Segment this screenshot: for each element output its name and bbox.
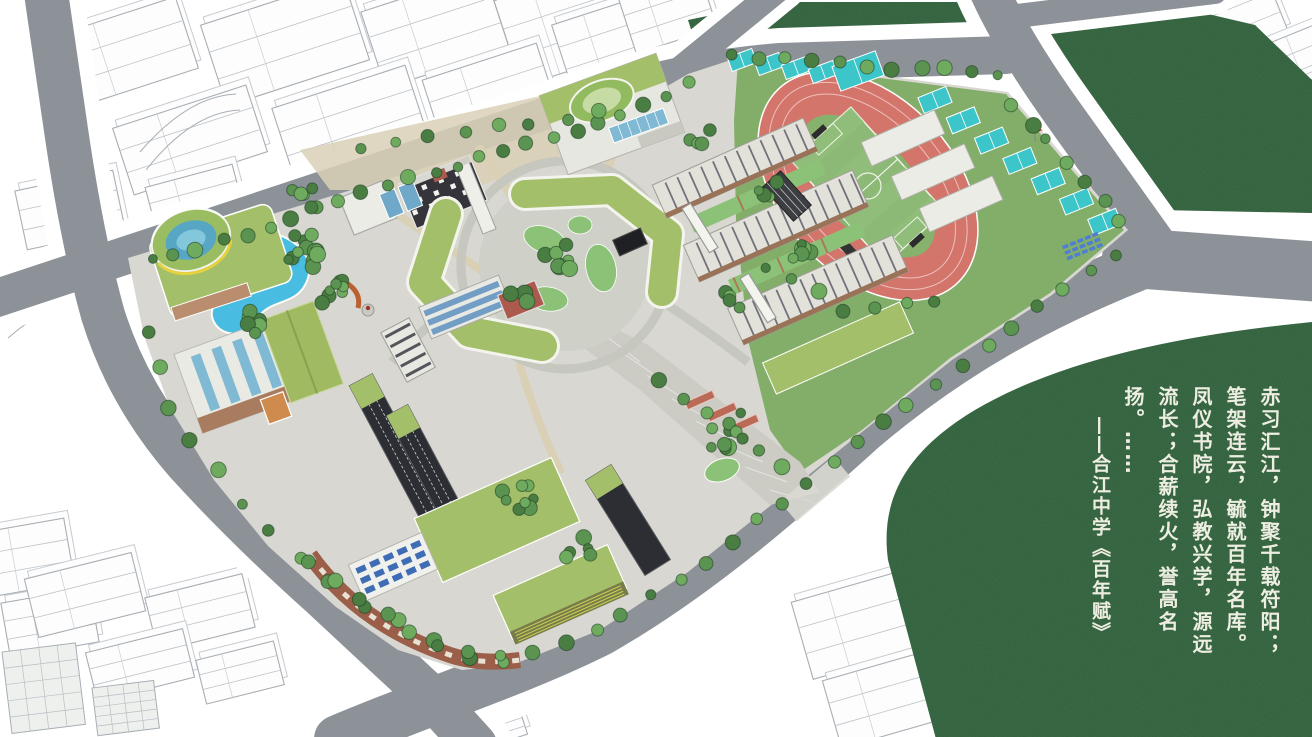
tree	[899, 398, 913, 412]
poem-line-5-text: 扬。	[1121, 386, 1145, 431]
tree	[804, 53, 819, 68]
tree	[834, 56, 846, 68]
tree	[884, 62, 899, 77]
tree	[613, 608, 627, 622]
tree	[1004, 98, 1017, 111]
tree	[860, 60, 874, 74]
tree	[218, 233, 230, 245]
poem-line-4: 流长；合薪续火，誉高名	[1155, 386, 1178, 634]
tree	[704, 124, 717, 137]
tree	[161, 400, 177, 416]
tree	[966, 66, 978, 78]
tree	[699, 557, 713, 571]
poem-line-2: 笔架连云，毓就百年名库。	[1223, 386, 1246, 656]
poem-line-5: 扬。……	[1121, 386, 1144, 476]
context-tower-wireframe	[92, 680, 159, 735]
tree	[701, 407, 713, 419]
tree	[315, 295, 330, 310]
tree	[929, 296, 940, 307]
tree	[717, 437, 731, 451]
tree	[520, 497, 530, 507]
tree	[432, 168, 442, 178]
tree	[519, 293, 535, 309]
tree	[752, 52, 766, 66]
poem-line-3: 凤仪书院，弘教兴学，源远	[1189, 386, 1212, 656]
tree	[241, 229, 255, 243]
tree	[1086, 265, 1097, 276]
tree	[402, 625, 416, 639]
tree	[851, 435, 864, 448]
tree	[328, 573, 343, 588]
tree	[592, 624, 604, 636]
tree	[382, 180, 393, 191]
tree	[786, 274, 797, 285]
tree	[576, 530, 592, 546]
tree	[571, 124, 586, 139]
tree	[661, 91, 671, 101]
tree	[1041, 134, 1051, 144]
tree	[305, 228, 318, 241]
tree	[734, 302, 745, 313]
tree	[723, 294, 736, 307]
tree	[983, 339, 996, 352]
tree	[737, 433, 748, 444]
tree	[289, 230, 301, 242]
tree	[761, 263, 770, 272]
tree	[262, 525, 274, 537]
poem-line-1: 赤习汇江，钟聚千载符阳；	[1257, 386, 1280, 656]
tree	[283, 211, 299, 227]
tree	[779, 52, 791, 64]
tree	[432, 640, 444, 652]
tree	[770, 175, 784, 189]
tree	[876, 414, 892, 430]
tree	[651, 372, 666, 387]
tree	[284, 255, 294, 265]
tree	[776, 498, 788, 510]
tree	[561, 260, 577, 276]
tree	[646, 590, 656, 600]
tree	[707, 423, 718, 434]
tree	[305, 201, 318, 214]
tree	[497, 144, 510, 157]
tree	[519, 136, 533, 150]
tree	[148, 254, 157, 263]
tree	[678, 393, 690, 405]
tree	[356, 144, 366, 154]
tree	[1056, 283, 1069, 296]
attribution-text: 合江中学《百年赋》	[1089, 454, 1111, 643]
tree	[707, 442, 717, 452]
tree	[736, 408, 746, 418]
tree	[788, 253, 798, 263]
tree	[836, 304, 850, 318]
tree	[391, 137, 401, 147]
tree	[1031, 300, 1043, 312]
tree	[548, 132, 560, 144]
tree	[516, 480, 528, 492]
tree	[453, 162, 463, 172]
tree	[421, 130, 434, 143]
tree	[503, 286, 519, 302]
tree	[1099, 194, 1112, 207]
tree	[400, 170, 415, 185]
statue	[366, 306, 370, 310]
tree	[937, 60, 952, 75]
tree	[811, 283, 827, 299]
tree	[352, 592, 366, 606]
tree	[461, 645, 474, 658]
tree	[307, 183, 318, 194]
tree	[902, 297, 913, 308]
tree	[492, 118, 505, 131]
tree	[309, 246, 325, 262]
tree	[249, 327, 260, 338]
tree	[301, 555, 315, 569]
tree	[142, 326, 155, 339]
tree	[591, 103, 606, 118]
attribution-dash-icon: ——	[1089, 416, 1111, 454]
tree	[211, 462, 227, 478]
poem-ellipsis: ……	[1121, 431, 1145, 476]
tree	[293, 247, 304, 258]
tree	[1078, 175, 1091, 188]
tree	[584, 548, 597, 561]
tree	[266, 222, 277, 233]
tree	[956, 359, 970, 373]
tree	[726, 49, 737, 60]
tree	[331, 279, 342, 290]
tree	[559, 238, 572, 251]
tree	[930, 379, 941, 390]
tree	[753, 445, 764, 456]
tree	[501, 495, 511, 505]
tree	[1111, 250, 1122, 261]
plaza-lawn	[568, 216, 592, 234]
tree	[915, 61, 930, 76]
tree	[353, 185, 368, 200]
tree	[460, 126, 472, 138]
tree	[676, 574, 687, 585]
tree	[167, 249, 179, 261]
tree	[525, 645, 540, 660]
tree	[754, 186, 763, 195]
tree	[153, 360, 168, 375]
tree	[993, 71, 1002, 80]
tree	[473, 151, 485, 163]
tree	[294, 187, 308, 201]
tree	[869, 302, 881, 314]
tree	[774, 459, 790, 475]
tree	[828, 456, 840, 468]
context-tower-wireframe	[2, 643, 85, 733]
tree	[800, 478, 812, 490]
tree	[522, 119, 534, 131]
tree	[695, 137, 709, 151]
tree	[683, 76, 695, 88]
tree	[1060, 156, 1073, 169]
tree	[331, 195, 344, 208]
tree	[495, 650, 505, 660]
tree	[614, 110, 625, 121]
tree	[751, 513, 763, 525]
tree	[560, 550, 574, 564]
tree	[187, 242, 203, 258]
campus-aerial-rendering: 赤习汇江，钟聚千载符阳； 笔架连云，毓就百年名库。 凤仪书院，弘教兴学，源远 流…	[0, 0, 1312, 737]
tree	[182, 432, 197, 447]
tree	[1112, 214, 1125, 227]
tree	[559, 635, 575, 651]
tree	[636, 97, 651, 112]
tree	[725, 535, 740, 550]
tree	[563, 114, 574, 125]
poem-overlay: 赤习汇江，钟聚千载符阳； 笔架连云，毓就百年名库。 凤仪书院，弘教兴学，源远 流…	[1080, 386, 1280, 694]
poem-attribution: ——合江中学《百年赋》	[1088, 416, 1110, 643]
tree	[1026, 118, 1042, 134]
tree	[1004, 321, 1019, 336]
tree	[237, 499, 247, 509]
tree	[381, 607, 395, 621]
